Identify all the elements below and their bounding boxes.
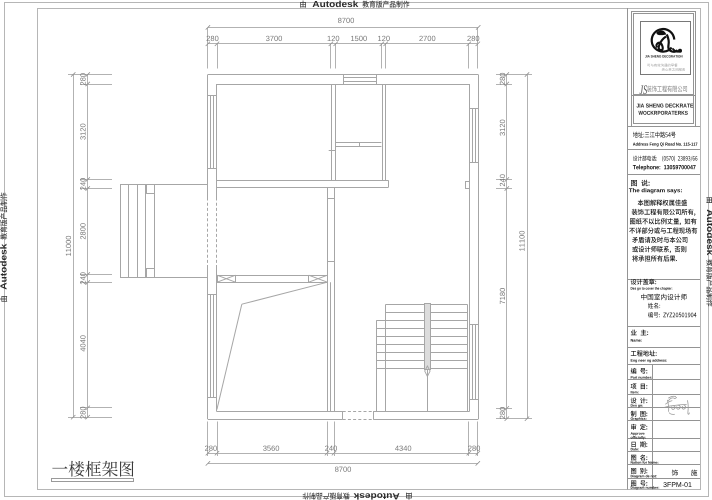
svg-text:JS: JS <box>640 82 648 97</box>
